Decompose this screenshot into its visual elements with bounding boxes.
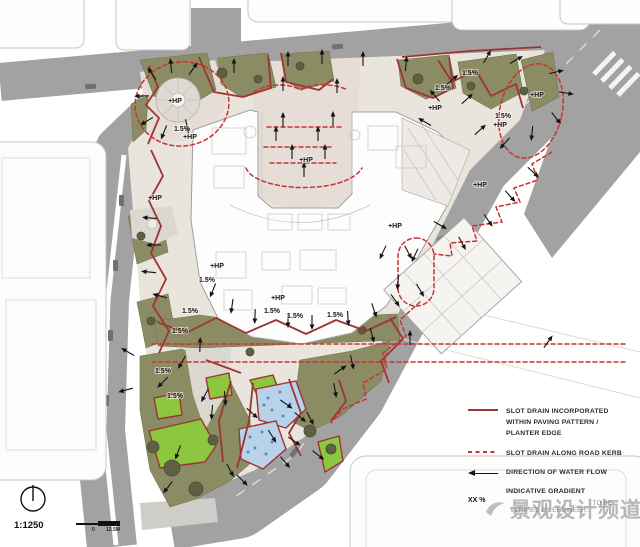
scale-bar-zero-label: 0 xyxy=(92,527,95,533)
legend-item: DIRECTION OF WATER FLOW xyxy=(468,467,640,478)
high-point-label: +HP xyxy=(183,134,197,141)
legend-item: SLOT DRAIN ALONG ROAD KERB xyxy=(468,448,640,459)
gradient-label: 1.5% xyxy=(155,368,172,375)
legend-item-label: SLOT DRAIN ALONG ROAD KERB xyxy=(506,448,634,459)
note-line-1: TO BE xyxy=(470,500,612,507)
legend-swatch-dashed-drain-icon xyxy=(468,451,498,454)
legend: SLOT DRAIN INCORPORATED WITHIN PAVING PA… xyxy=(468,406,640,515)
gradient-label: 1.5% xyxy=(199,277,216,284)
high-point-label: +HP xyxy=(271,295,285,302)
legend-item-label: SLOT DRAIN INCORPORATED WITHIN PAVING PA… xyxy=(506,406,634,440)
gradient-label: 1.5% xyxy=(167,393,184,400)
high-point-label: +HP xyxy=(493,122,507,129)
gradient-label: 1.5% xyxy=(435,85,452,92)
high-point-label: +HP xyxy=(299,157,313,164)
scale-ratio-label: 1:1250 xyxy=(14,520,44,531)
legend-swatch-flow-arrow-icon xyxy=(468,470,498,477)
high-point-label: +HP xyxy=(148,195,162,202)
legend-item-label: INDICATIVE GRADIENT xyxy=(506,486,634,497)
gradient-label: 1.5% xyxy=(495,113,512,120)
engineer-note: TO BE VERIFIED BY ENGINEER. xyxy=(470,500,630,514)
scale-bar-max-label: 12.5M xyxy=(106,527,120,533)
high-point-label: +HP xyxy=(473,182,487,189)
gradient-label: 1.5% xyxy=(172,328,189,335)
gradient-label: 1.5% xyxy=(264,308,281,315)
high-point-label: +HP xyxy=(388,223,402,230)
gradient-label: 1.5% xyxy=(182,308,199,315)
note-line-2: VERIFIED BY ENGINEER. xyxy=(510,507,630,514)
gradient-label: 1.5% xyxy=(287,313,304,320)
gradient-label: 1.5% xyxy=(462,70,479,77)
gradient-label: 1.5% xyxy=(174,126,191,133)
high-point-label: +HP xyxy=(530,92,544,99)
high-point-label: +HP xyxy=(428,105,442,112)
legend-item-label: DIRECTION OF WATER FLOW xyxy=(506,467,634,478)
high-point-label: +HP xyxy=(210,263,224,270)
legend-item: SLOT DRAIN INCORPORATED WITHIN PAVING PA… xyxy=(468,406,640,440)
legend-swatch-solid-drain-icon xyxy=(468,409,498,411)
site-plan-page: +HP+HP+HP+HP+HP+HP+HP+HP+HP+HP+HP1.5%1.5… xyxy=(0,0,640,547)
high-point-label: +HP xyxy=(168,98,182,105)
gradient-label: 1.5% xyxy=(327,312,344,319)
